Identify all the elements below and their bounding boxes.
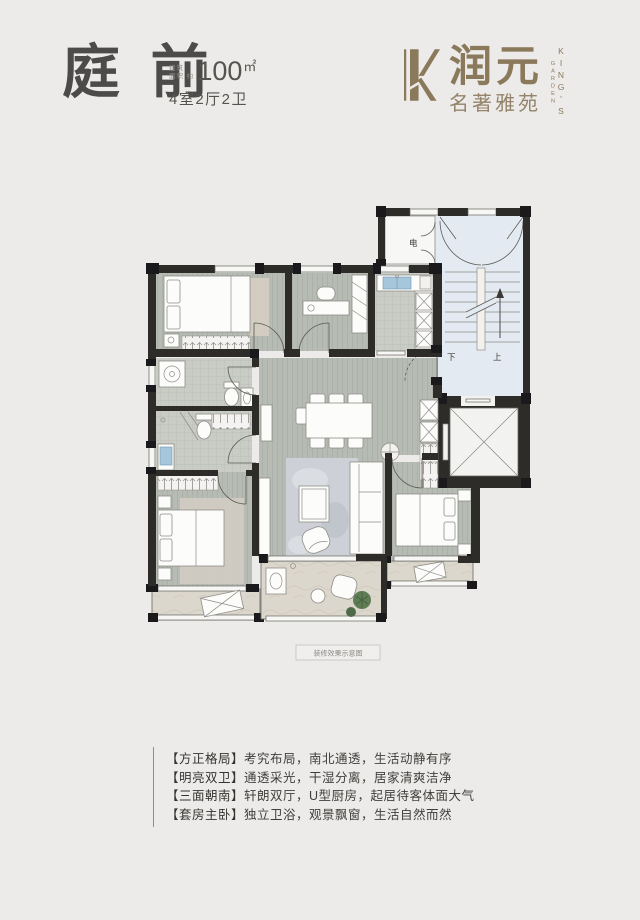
brand-logo: 润元 名著雅苑 GARDEN KING'S — [404, 46, 566, 118]
bedroom2-closet — [423, 462, 438, 488]
sideboard — [261, 405, 272, 441]
stool — [311, 589, 325, 603]
feature-list: 【方正格局】考究布局，南北通透，生活动静有序 【明亮双卫】通透采光，干湿分离，居… — [153, 747, 475, 827]
sofa — [350, 462, 383, 554]
feature-item: 【三面朝南】轩朗双厅，U型厨房，起居待客体面大气 — [166, 787, 475, 806]
area-info: 建筑 面积 约 100㎡ 4室2厅2卫 — [169, 58, 256, 109]
wardrobe-hangers — [158, 474, 218, 490]
tv-cabinet — [259, 478, 270, 558]
area-prefix: 建筑 面积 约 — [169, 65, 194, 81]
feature-item: 【套房主卧】独立卫浴，观景飘窗，生活自然而然 — [166, 806, 475, 825]
logo-en-main: KING'S — [556, 46, 566, 118]
meter-room-label: 电 — [409, 238, 418, 249]
logo-sub-cn: 名著雅苑 — [449, 94, 543, 114]
vanity-shared — [241, 388, 253, 408]
area-unit: ㎡ — [243, 59, 256, 74]
balcony — [261, 561, 385, 621]
washing-machine — [159, 361, 185, 387]
dining-table — [306, 403, 372, 438]
balcony-basin — [266, 568, 286, 594]
toilet-master — [196, 414, 212, 420]
stairs-down-label: 下 — [447, 353, 456, 363]
stairs-up-label: 上 — [493, 353, 502, 363]
plant-small — [346, 607, 356, 617]
area-value: 100㎡ — [197, 58, 256, 85]
caption-text: 装修效果示意图 — [314, 649, 363, 658]
basin-master — [160, 447, 172, 465]
plan-caption: 装修效果示意图 — [296, 645, 380, 660]
kitchen-sliding-door — [377, 351, 405, 355]
closet-hangers — [212, 414, 250, 429]
floor-plan: 电 下 上 — [130, 195, 550, 665]
logo-mark-icon — [404, 46, 440, 104]
elevator — [435, 393, 531, 488]
feature-item: 【方正格局】考究布局，南北通透，生活动静有序 — [166, 750, 475, 769]
feature-item: 【明亮双卫】通透采光，干湿分离，居家清爽洁净 — [166, 769, 475, 788]
coffee-table — [299, 486, 329, 522]
master-bay-window — [146, 584, 264, 622]
rooms-label: 4室2厅2卫 — [169, 88, 256, 109]
logo-name-cn: 润元 — [449, 46, 543, 89]
